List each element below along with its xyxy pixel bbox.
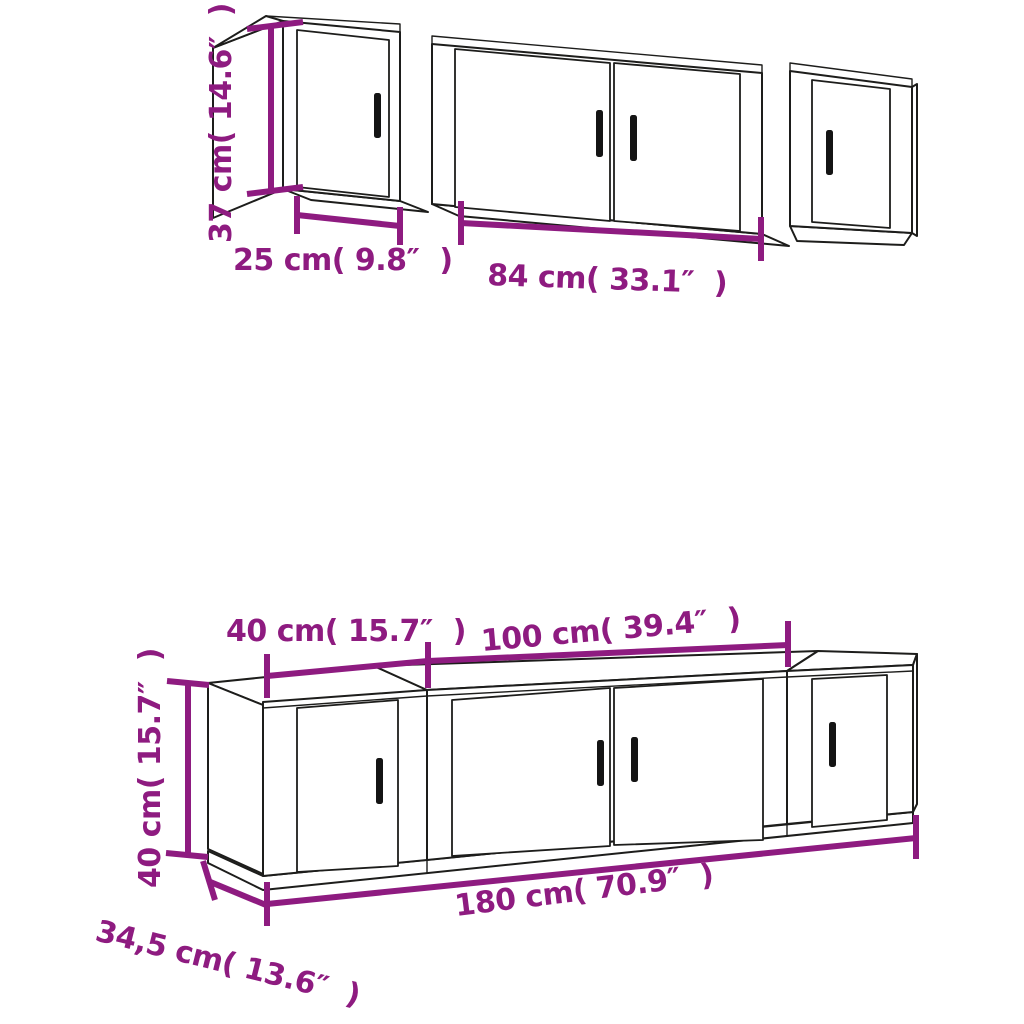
dimension-label: 40 cm( 15.7″ ) <box>133 648 168 888</box>
furniture-dimension-diagram: 37 cm( 14.6″ ) 25 cm( 9.8″ ) 84 cm( 33.1… <box>0 0 1024 1024</box>
cabinet-door-left <box>452 688 610 856</box>
door-handle-left <box>596 110 603 157</box>
door-handle-left <box>597 740 604 786</box>
door-handle <box>374 93 381 138</box>
dimension-label: 34,5 cm( 13.6″ ) <box>92 914 364 1014</box>
dimension-label: 84 cm( 33.1″ ) <box>487 258 728 301</box>
tv-cabinet-middle <box>374 651 818 860</box>
door-handle <box>829 722 836 767</box>
dimension-label: 37 cm( 14.6″ ) <box>204 3 239 243</box>
wall-cabinet-left <box>213 16 428 218</box>
cabinet-door-left <box>455 49 610 221</box>
door-handle-right <box>630 115 637 161</box>
door-handle <box>376 758 383 804</box>
dimension-cap <box>167 681 209 685</box>
tv-cabinet-set: 40 cm( 15.7″ ) 100 cm( 39.4″ ) 40 cm( 15… <box>92 601 917 1013</box>
dimension-label: 25 cm( 9.8″ ) <box>233 243 453 278</box>
dimension-tv-height: 40 cm( 15.7″ ) <box>133 648 209 888</box>
tv-cabinet-left <box>208 666 427 876</box>
wall-cabinet-set: 37 cm( 14.6″ ) 25 cm( 9.8″ ) 84 cm( 33.1… <box>204 3 917 301</box>
door-handle <box>826 130 833 175</box>
tv-cabinet-right <box>787 651 917 827</box>
dimension-cap <box>166 853 208 857</box>
wall-cabinet-right <box>790 63 917 245</box>
dimension-line <box>297 215 400 226</box>
cabinet-side-panel <box>208 683 263 874</box>
dimension-label: 40 cm( 15.7″ ) <box>226 614 466 649</box>
door-handle-right <box>631 737 638 782</box>
diagram-canvas: 37 cm( 14.6″ ) 25 cm( 9.8″ ) 84 cm( 33.1… <box>0 0 1024 1024</box>
cabinet-door <box>812 675 887 827</box>
dimension-label: 180 cm( 70.9″ ) <box>453 857 716 923</box>
cabinet-door <box>812 80 890 228</box>
wall-cabinet-middle <box>432 36 789 246</box>
